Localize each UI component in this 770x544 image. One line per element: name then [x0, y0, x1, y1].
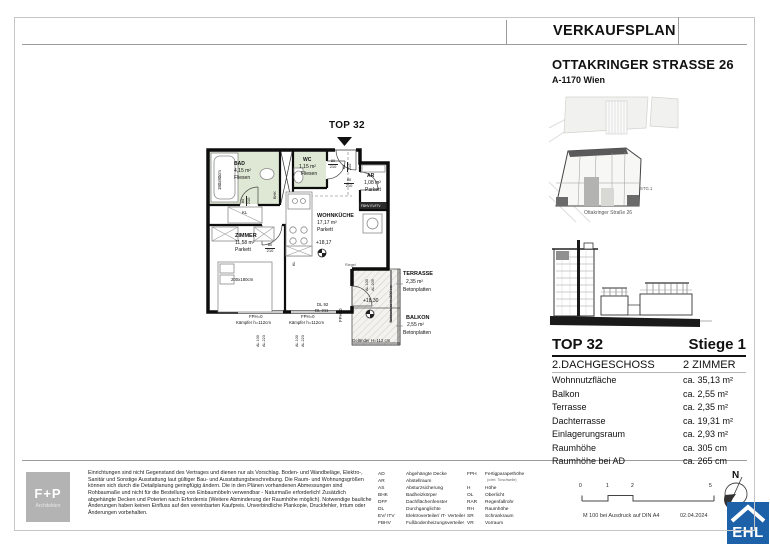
room-name-zimmer: ZIMMER — [235, 233, 257, 239]
abbr-meaning: Abstellraum — [406, 479, 431, 484]
table-row: Raumhöhe ca. 305 cm — [552, 443, 746, 453]
abbr: FBHV — [378, 521, 391, 526]
abbr-meaning: Regenfallrohr — [485, 500, 514, 505]
room-floor-zimmer: Parkett — [235, 248, 251, 254]
abbr-meaning: Badheizkörper — [406, 493, 437, 498]
abbr-meaning: Durchganglichte — [406, 507, 441, 512]
abbr-meaning: Fußbodenheizungsverteiler — [406, 521, 464, 526]
row-value: ca. 2,93 m² — [683, 429, 728, 439]
abbr: H — [467, 486, 470, 491]
al100-label-1: AL 100 — [256, 335, 260, 347]
room-area-balkon: 2,55 m² — [407, 323, 424, 329]
level-label-inside: +18,17 — [316, 241, 331, 247]
abbr-meaning: Vorraum — [485, 521, 503, 526]
room-floor-ar: Parkett — [365, 188, 381, 194]
al209-label: AL 209 — [371, 279, 375, 291]
row-label: Einlagerungsraum — [552, 429, 625, 439]
row-label: Terrasse — [552, 402, 587, 412]
abbr: AR — [378, 479, 385, 484]
level-label-terrace: +18,30 — [363, 299, 378, 305]
table-row: Raumhöhe bei AD ca. 265 cm — [552, 456, 746, 466]
row-value: ca. 35,13 m² — [683, 375, 733, 385]
al223-label-2: AL 223 — [301, 335, 305, 347]
dl211-label: DL 211 — [315, 308, 328, 313]
room-floor-bad: Fliesen — [234, 176, 250, 182]
abbr-meaning: Höhe — [485, 486, 496, 491]
table-stiege: Stiege 1 — [595, 336, 746, 353]
door-size-entrance: 80 210 — [342, 162, 352, 172]
abbr-meaning: Absturzsicherung — [406, 486, 443, 491]
kl-label-corridor: KL — [292, 261, 296, 266]
table-floor-level: 2.DACHGESCHOSS — [552, 359, 655, 371]
abbr-meaning: Fertigparapethöhe — [485, 472, 524, 477]
bhk-label: BHK — [273, 191, 277, 199]
abbr: BHK — [378, 493, 388, 498]
room-name-bad: BAD — [234, 162, 245, 168]
print-scale-note: M 100 bei Ausdruck auf DIN A4 — [583, 513, 659, 519]
room-name-wohnkueche: WOHNKÜCHE — [317, 213, 354, 219]
fph-label-1: FPH=0 — [249, 314, 263, 319]
abbr-meaning: Oberlicht — [485, 493, 504, 498]
abbr-meaning: Schrankraum — [485, 514, 514, 519]
abbr: SR — [467, 514, 474, 519]
al100-label-2: AL 100 — [295, 335, 299, 347]
door-size-bad: 80 210 — [241, 196, 251, 206]
kl-label: KL — [242, 210, 247, 215]
scale-tick-0: 0 — [579, 483, 582, 489]
kaempfer-label-1: Kämpfer h=112cm — [236, 320, 271, 325]
table-row: Wohnnutzfläche ca. 35,13 m² — [552, 375, 746, 385]
disclaimer-text: Einrichtungen sind nicht Gegenstand des … — [88, 470, 372, 517]
sheet-border — [14, 17, 755, 531]
fbhv-label: FBHV EV/ITV — [361, 204, 380, 208]
dl92-label: DL 92 — [317, 302, 328, 307]
row-value: ca. 305 cm — [683, 443, 727, 453]
al223-label-1: AL 223 — [262, 335, 266, 347]
abbr-meaning: Dachflächenfenster — [406, 500, 447, 505]
address-street: OTTAKRINGER STRASSE 26 — [552, 57, 734, 72]
plan-date: 02.04.2024 — [680, 513, 708, 519]
header-rule — [22, 44, 747, 45]
room-area-zimmer: 11,58 m² — [235, 241, 254, 247]
address-city: A-1170 Wien — [552, 75, 605, 85]
room-area-wc: 1,15 m² — [299, 165, 316, 171]
door-size-zimmer: 80 210 — [265, 243, 275, 253]
bed-size-label: 200x180cm — [231, 277, 253, 282]
abbr-note: (v.fert. Türschwelle) — [487, 478, 516, 482]
row-label: Balkon — [552, 389, 580, 399]
room-floor-terrasse: Betonplatten — [403, 288, 431, 294]
siteplan-stg-label: STG.1 — [640, 186, 652, 191]
room-floor-balkon: Betonplatten — [403, 331, 431, 337]
row-label: Raumhöhe — [552, 443, 596, 453]
abbr: OL — [467, 493, 473, 498]
page-title: VERKAUFSPLAN — [553, 23, 676, 39]
plan-unit-label: TOP 32 — [329, 120, 365, 131]
door-size-wc: 80 210 — [328, 159, 338, 169]
abbr: RH — [467, 507, 474, 512]
table-row: Dachterrasse ca. 19,31 m² — [552, 416, 746, 426]
abbr-meaning: Elektroverteiler/ IT- Verteiler — [406, 514, 465, 519]
title-box-left-rule — [506, 20, 507, 44]
room-area-wohnkueche: 17,17 m² — [317, 221, 337, 227]
architect-logo-subtext: Architekten — [26, 503, 70, 509]
bathtub-size-label: 180x80cm — [217, 170, 222, 190]
row-label: Wohnnutzfläche — [552, 375, 616, 385]
abbr: FPH — [467, 472, 477, 477]
room-name-terrasse: TERRASSE — [403, 271, 433, 277]
row-value: ca. 265 cm — [683, 456, 727, 466]
row-label: Dachterrasse — [552, 416, 606, 426]
abbr: EV/ ITV — [378, 514, 395, 519]
abbr: VR — [467, 521, 474, 526]
abbr: RAR — [467, 500, 477, 505]
riegel-label: Riegel — [345, 263, 356, 267]
abbr: AS — [378, 486, 384, 491]
scale-tick-1: 1 — [606, 483, 609, 489]
al100-label-3: AL 100 — [365, 279, 369, 291]
table-sub-rule — [552, 372, 746, 373]
north-label: N — [732, 470, 739, 481]
scale-tick-5: 5 — [709, 483, 712, 489]
architect-logo: F+P Architekten — [26, 472, 70, 522]
fph-label-2: FPH=0 — [301, 314, 315, 319]
abbr-meaning: Raumhöhe — [485, 507, 508, 512]
abbr: AD — [378, 472, 385, 477]
table-row: Terrasse ca. 2,35 m² — [552, 402, 746, 412]
room-floor-wc: Fliesen — [301, 172, 317, 178]
room-area-bad: 4,15 m² — [234, 169, 251, 175]
room-name-ar: AR — [367, 174, 374, 180]
row-value: ca. 2,55 m² — [683, 389, 728, 399]
row-value: ca. 19,31 m² — [683, 416, 733, 426]
table-row: Balkon ca. 2,55 m² — [552, 389, 746, 399]
fph-label-3: FPH=0 — [338, 309, 343, 323]
siteplan-caption: Ottakringer Straße 26 — [584, 211, 632, 217]
room-floor-wohnkueche: Parkett — [317, 228, 333, 234]
scale-tick-2: 2 — [631, 483, 634, 489]
verkaufsplan-sheet: EHL VERKAUFSPLAN OTTAKRINGER STRASSE 26 … — [0, 0, 770, 544]
row-value: ca. 2,35 m² — [683, 402, 728, 412]
abbr: DL — [378, 507, 384, 512]
abbr: DFF — [378, 500, 387, 505]
table-row: Einlagerungsraum ca. 2,93 m² — [552, 429, 746, 439]
kaempfer-label-2: Kämpfer h=112cm — [289, 320, 324, 325]
table-head-rule — [552, 355, 746, 357]
door-size-ar: 80 210 — [344, 178, 354, 188]
row-label: Raumhöhe bei AD — [552, 456, 625, 466]
table-room-count: 2 ZIMMER — [683, 359, 736, 371]
room-area-ar: 1,08 m² — [364, 181, 381, 187]
room-name-balkon: BALKON — [406, 315, 430, 321]
gelaender-label: Geländer H=112 cm — [352, 338, 390, 343]
sichtschutz-label: Sichtschutz H=200 cm — [389, 285, 393, 323]
architect-logo-text: F+P — [26, 486, 70, 501]
room-name-wc: WC — [303, 158, 311, 164]
room-area-terrasse: 2,35 m² — [406, 280, 423, 286]
title-box-right-rule — [678, 17, 679, 44]
abbr-meaning: Abgehängte Decke — [406, 472, 447, 477]
